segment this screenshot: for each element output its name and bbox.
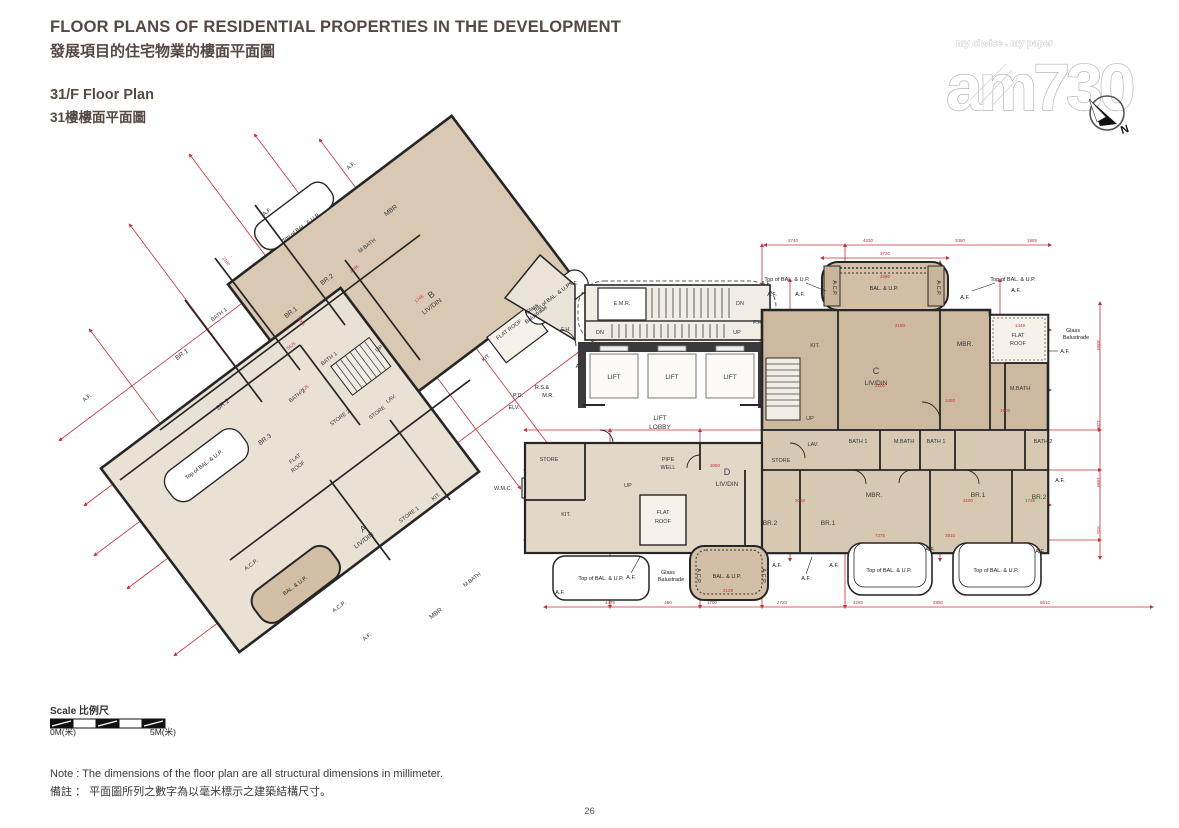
acp-label: A.C.P. [760, 568, 766, 584]
room-label: F.H. [561, 327, 571, 333]
room-label: M.BATH [894, 439, 914, 445]
room-label: BR.2 [1032, 494, 1047, 501]
balcony-label: Top of BAL. & U.P. [973, 568, 1019, 574]
af-label: A.F. [761, 281, 771, 287]
room-label: LIFT [723, 374, 736, 381]
dim-label: 3280 [880, 274, 891, 279]
glass-balustrade-label: Balustrade [658, 577, 684, 583]
room-label: WELL [661, 465, 676, 471]
dim-label: 2850 [933, 600, 944, 605]
room-label: FLAT [656, 510, 670, 516]
notes: Note : The dimensions of the floor plan … [50, 768, 443, 799]
glass-balustrade-label: Glass [1066, 328, 1080, 334]
room-label: UP [624, 483, 632, 489]
room-label: A.D. [576, 364, 587, 370]
dim-label: 2180 [895, 323, 906, 328]
dim-label: 450 [664, 600, 672, 605]
room-label: LOBBY [649, 424, 671, 431]
balcony-label: BAL. & U.P. [713, 574, 742, 580]
room-label: KIT. [561, 512, 571, 518]
af-label: A.F. [82, 393, 94, 404]
dim-label: 1200 [1096, 420, 1101, 431]
af-label: A.F. [1055, 478, 1065, 484]
glass-balustrade-label: Glass [661, 570, 675, 576]
room-label: M.R. [542, 393, 554, 399]
room-label: ROOF [655, 519, 672, 525]
balcony-label: Top of BAL. & U.P. [578, 576, 624, 582]
af-label: A.F. [346, 161, 358, 172]
room-label: PIPE [662, 457, 675, 463]
dim-label: 915 [1096, 526, 1101, 534]
af-label: A.F. [960, 295, 970, 301]
room-label: UP [733, 330, 741, 336]
room-label: BATH 2 [1034, 439, 1053, 445]
room-label: R.S.& [535, 385, 550, 391]
dim-label: 2720 [777, 600, 788, 605]
scale-five-label: 5M(米) [150, 726, 176, 738]
room-label: STORE [540, 457, 559, 463]
scale-label: Scale 比例尺 [50, 702, 230, 717]
dim-label: 3610 [945, 533, 956, 538]
room-label: LIV/DIN [865, 380, 888, 387]
acp-label: A.C.P. [332, 600, 348, 614]
acp-label: A.C.P. [831, 280, 837, 296]
room-label: P.D. [513, 393, 523, 399]
glass-balustrade-label: Balustrade [1063, 335, 1089, 341]
dim-label: 3720 [880, 251, 891, 256]
af-label: A.F. [829, 563, 839, 569]
dim-label: 4330 [863, 238, 874, 243]
room-label: UP [806, 416, 814, 422]
dim-label: 2740 [788, 238, 799, 243]
balcony-label: Top of BAL. & U.P. [866, 568, 912, 574]
room-label: E.M.R. [614, 301, 631, 307]
room-label: BR.1 [821, 520, 836, 527]
room-label: MBR. [866, 492, 882, 499]
room-label: FLAT [1011, 333, 1025, 339]
flat-letter: D [724, 467, 731, 477]
c-stair [766, 358, 800, 420]
dim-label: 1600 [1000, 408, 1011, 413]
balcony-label: BAL. & U.P. [870, 286, 899, 292]
room-label: F.H. [753, 320, 763, 326]
room-label: MBR [428, 606, 444, 620]
dim-label: 1985 [1027, 238, 1038, 243]
note-zh: 備註 ： 平面圖所列之數字為以毫米標示之建築結構尺寸。 [50, 783, 443, 799]
dim-label: 2055 [795, 498, 806, 503]
dim-label: 7375 [875, 533, 886, 538]
scale-zero-label: 0M(米) [50, 726, 76, 738]
af-label: A.F. [925, 547, 935, 553]
room-label: ROOF [1010, 341, 1027, 347]
room-label: MBR. [957, 341, 973, 348]
dim-label: 1690 [1096, 477, 1101, 488]
af-label: A.F. [767, 292, 777, 298]
af-label: A.F. [626, 575, 636, 581]
acp-label: A.C.P. [695, 568, 701, 584]
bedroom-row [762, 430, 1048, 553]
af-label: A.F. [1060, 349, 1070, 355]
dim-label: 4280 [853, 600, 864, 605]
room-label: DN [736, 301, 744, 307]
room-label: DN [596, 330, 604, 336]
af-label: A.F. [801, 576, 811, 582]
room-label: BR.2 [763, 520, 778, 527]
acp-label: A.C.P. [935, 280, 941, 296]
note-en: Note : The dimensions of the floor plan … [50, 768, 443, 780]
room-label: BATH 1 [927, 439, 946, 445]
af-label: A.F. [568, 281, 578, 287]
room-label: LIFT [607, 374, 620, 381]
room-label: LIV/DIN [716, 481, 739, 488]
dim-label: 2450 [945, 398, 956, 403]
scale-bar: Scale 比例尺 0M(米) 5M(米) [50, 702, 230, 736]
af-label: A.F. [555, 590, 565, 596]
dim-label: 3080 [1096, 340, 1101, 351]
room-label: LAV. [807, 442, 818, 448]
dim-label: 2100 [221, 256, 231, 267]
balcony-label: Top of BAL. & U.P. [764, 277, 810, 283]
room-label: M.BATH [462, 572, 482, 589]
room-label: BR.1 [971, 492, 986, 499]
page-number: 26 [0, 806, 1179, 817]
room-label: ELV. [508, 405, 519, 411]
dim-label: 3050 [710, 463, 721, 468]
floor-plan-page: FLOOR PLANS OF RESIDENTIAL PROPERTIES IN… [0, 0, 1179, 828]
af-label: A.F. [1011, 288, 1021, 294]
dim-label: 3380 [955, 238, 966, 243]
room-label: W.M.C. [494, 486, 512, 492]
room-label: M.BATH [1010, 386, 1030, 392]
dim-label: 4475 [605, 600, 616, 605]
room-label: BATH 1 [849, 439, 868, 445]
dim-label: 2128 [723, 588, 734, 593]
dim-label: 1700 [707, 600, 718, 605]
room-label: KIT. [810, 343, 820, 349]
af-label: A.F. [362, 632, 374, 643]
dim-label: 1448 [1015, 323, 1026, 328]
af-label: A.F. [795, 292, 805, 298]
dim-label: 6610 [1040, 600, 1051, 605]
balcony-label: Top of BAL. & U.P. [990, 277, 1036, 283]
room-label: LIFT [653, 415, 666, 422]
room-label: LIFT [665, 374, 678, 381]
af-label: A.F. [772, 563, 782, 569]
room-label: BR.1 [174, 347, 190, 362]
flat-letter: C [873, 366, 880, 376]
room-label: STORE [772, 458, 791, 464]
af-label: A.F. [1035, 549, 1045, 555]
